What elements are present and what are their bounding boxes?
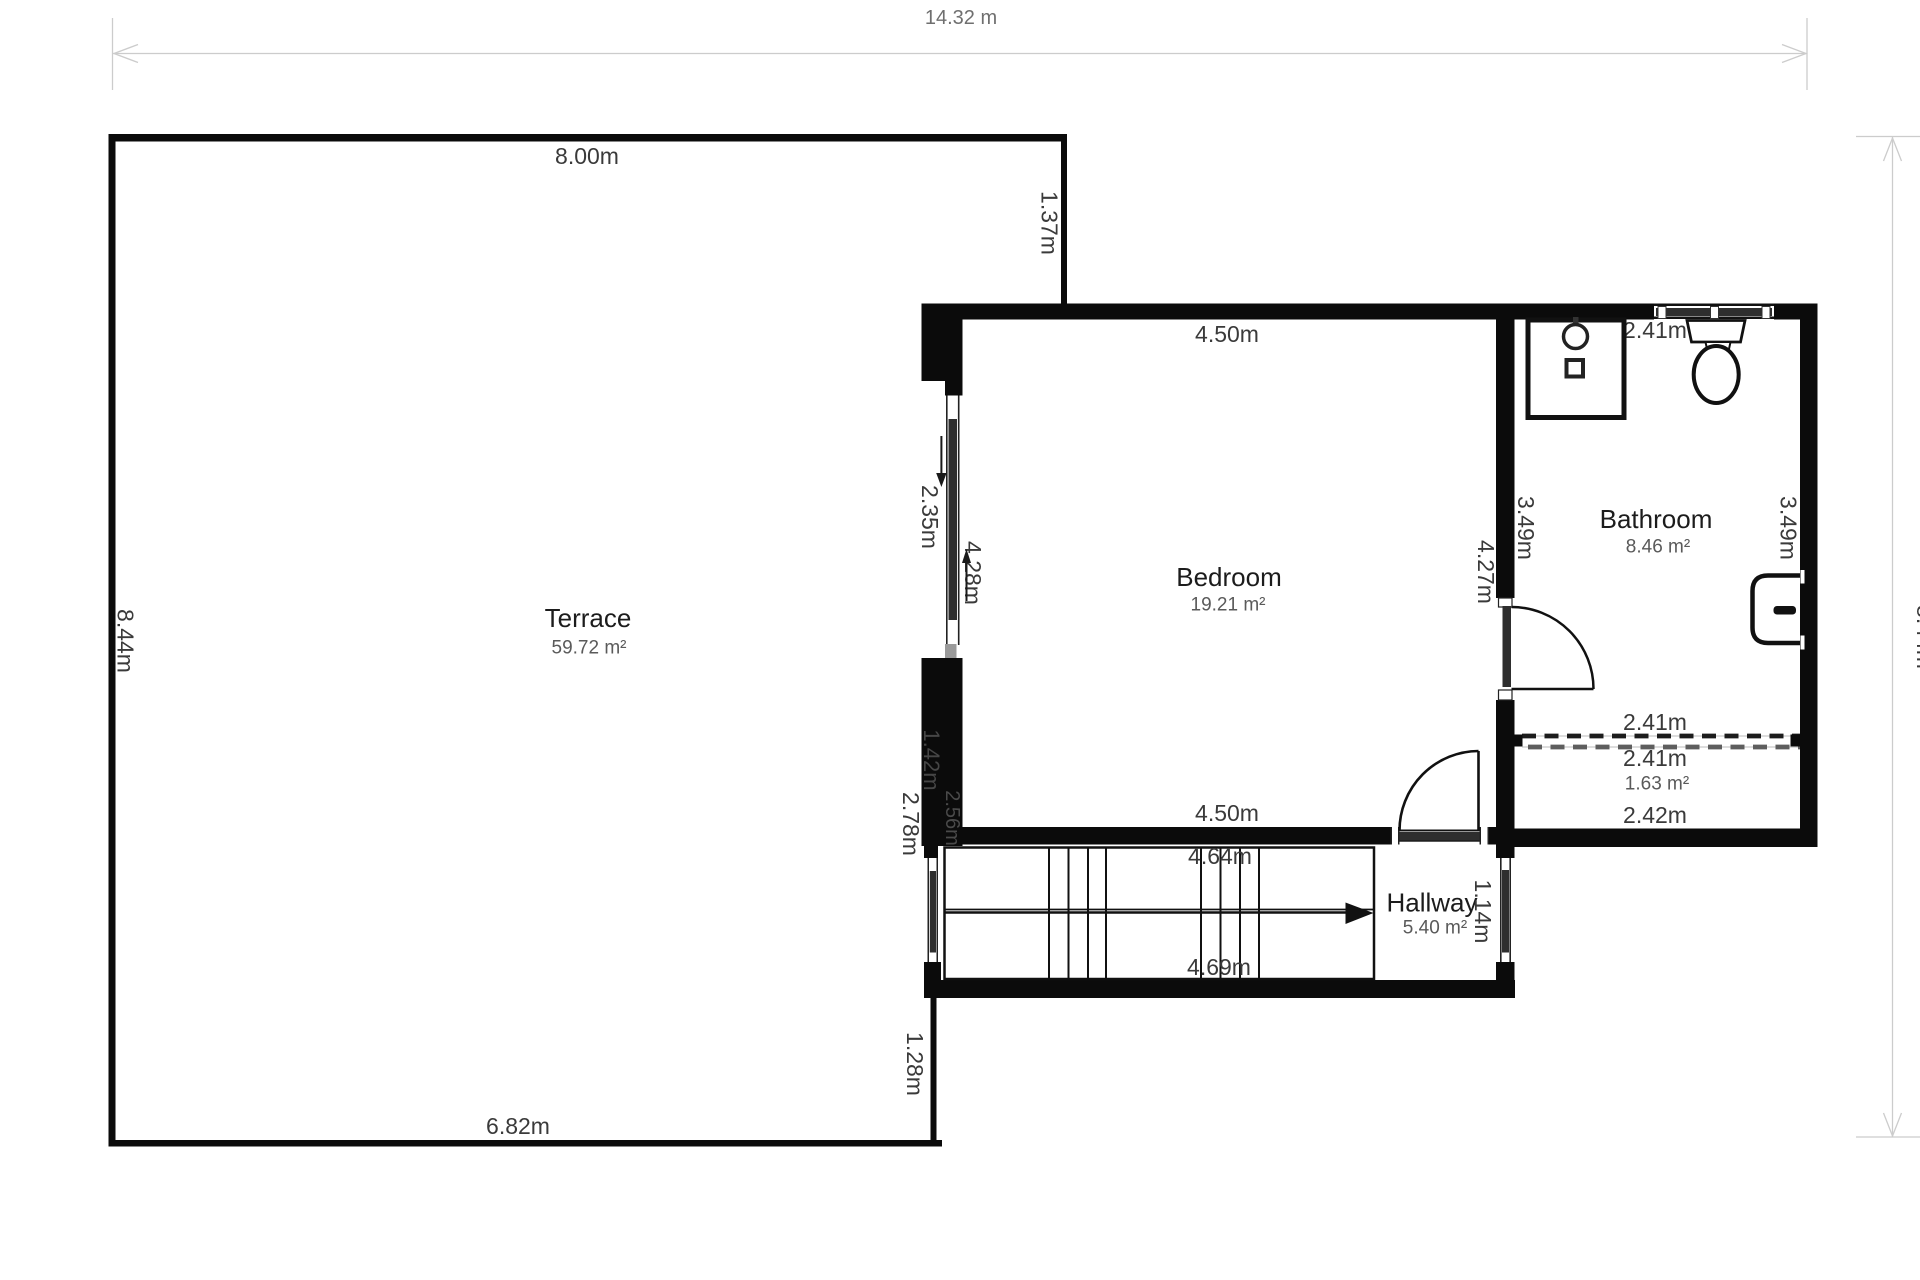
svg-text:3.49m: 3.49m <box>1776 496 1802 560</box>
svg-text:8.46 m²: 8.46 m² <box>1626 537 1690 558</box>
svg-text:1.14m: 1.14m <box>1470 880 1496 944</box>
svg-text:Bathroom: Bathroom <box>1600 504 1713 534</box>
svg-text:2.78m: 2.78m <box>898 792 924 856</box>
svg-text:4.69m: 4.69m <box>1187 954 1251 980</box>
svg-text:4.64m: 4.64m <box>1188 843 1252 869</box>
svg-text:1.42m: 1.42m <box>919 729 944 790</box>
svg-text:2.42m: 2.42m <box>1623 802 1687 828</box>
svg-text:1.37m: 1.37m <box>1037 191 1063 255</box>
svg-text:14.32 m: 14.32 m <box>925 7 997 29</box>
svg-text:2.56m: 2.56m <box>941 790 963 846</box>
svg-text:Hallway: Hallway <box>1386 888 1477 918</box>
svg-text:19.21 m²: 19.21 m² <box>1191 595 1266 616</box>
svg-text:5.40 m²: 5.40 m² <box>1403 918 1467 939</box>
svg-text:4.50m: 4.50m <box>1195 321 1259 347</box>
svg-text:2.41m: 2.41m <box>1623 709 1687 735</box>
svg-text:4.27m: 4.27m <box>1473 540 1499 604</box>
svg-text:3.49m: 3.49m <box>1513 496 1539 560</box>
svg-text:4.28m: 4.28m <box>960 541 986 605</box>
svg-text:Bedroom: Bedroom <box>1176 562 1282 592</box>
svg-text:2.35m: 2.35m <box>917 485 943 549</box>
svg-text:2.41m: 2.41m <box>1623 317 1687 343</box>
svg-text:8.44m: 8.44m <box>1912 605 1920 669</box>
svg-text:4.50m: 4.50m <box>1195 800 1259 826</box>
svg-text:8.44m: 8.44m <box>113 609 139 673</box>
svg-text:1.28m: 1.28m <box>902 1032 928 1096</box>
svg-text:1.63 m²: 1.63 m² <box>1625 774 1689 795</box>
svg-text:6.82m: 6.82m <box>486 1113 550 1139</box>
svg-text:59.72 m²: 59.72 m² <box>552 638 627 659</box>
svg-text:8.00m: 8.00m <box>555 143 619 169</box>
svg-text:Terrace: Terrace <box>545 603 632 633</box>
svg-text:2.41m: 2.41m <box>1623 745 1687 771</box>
